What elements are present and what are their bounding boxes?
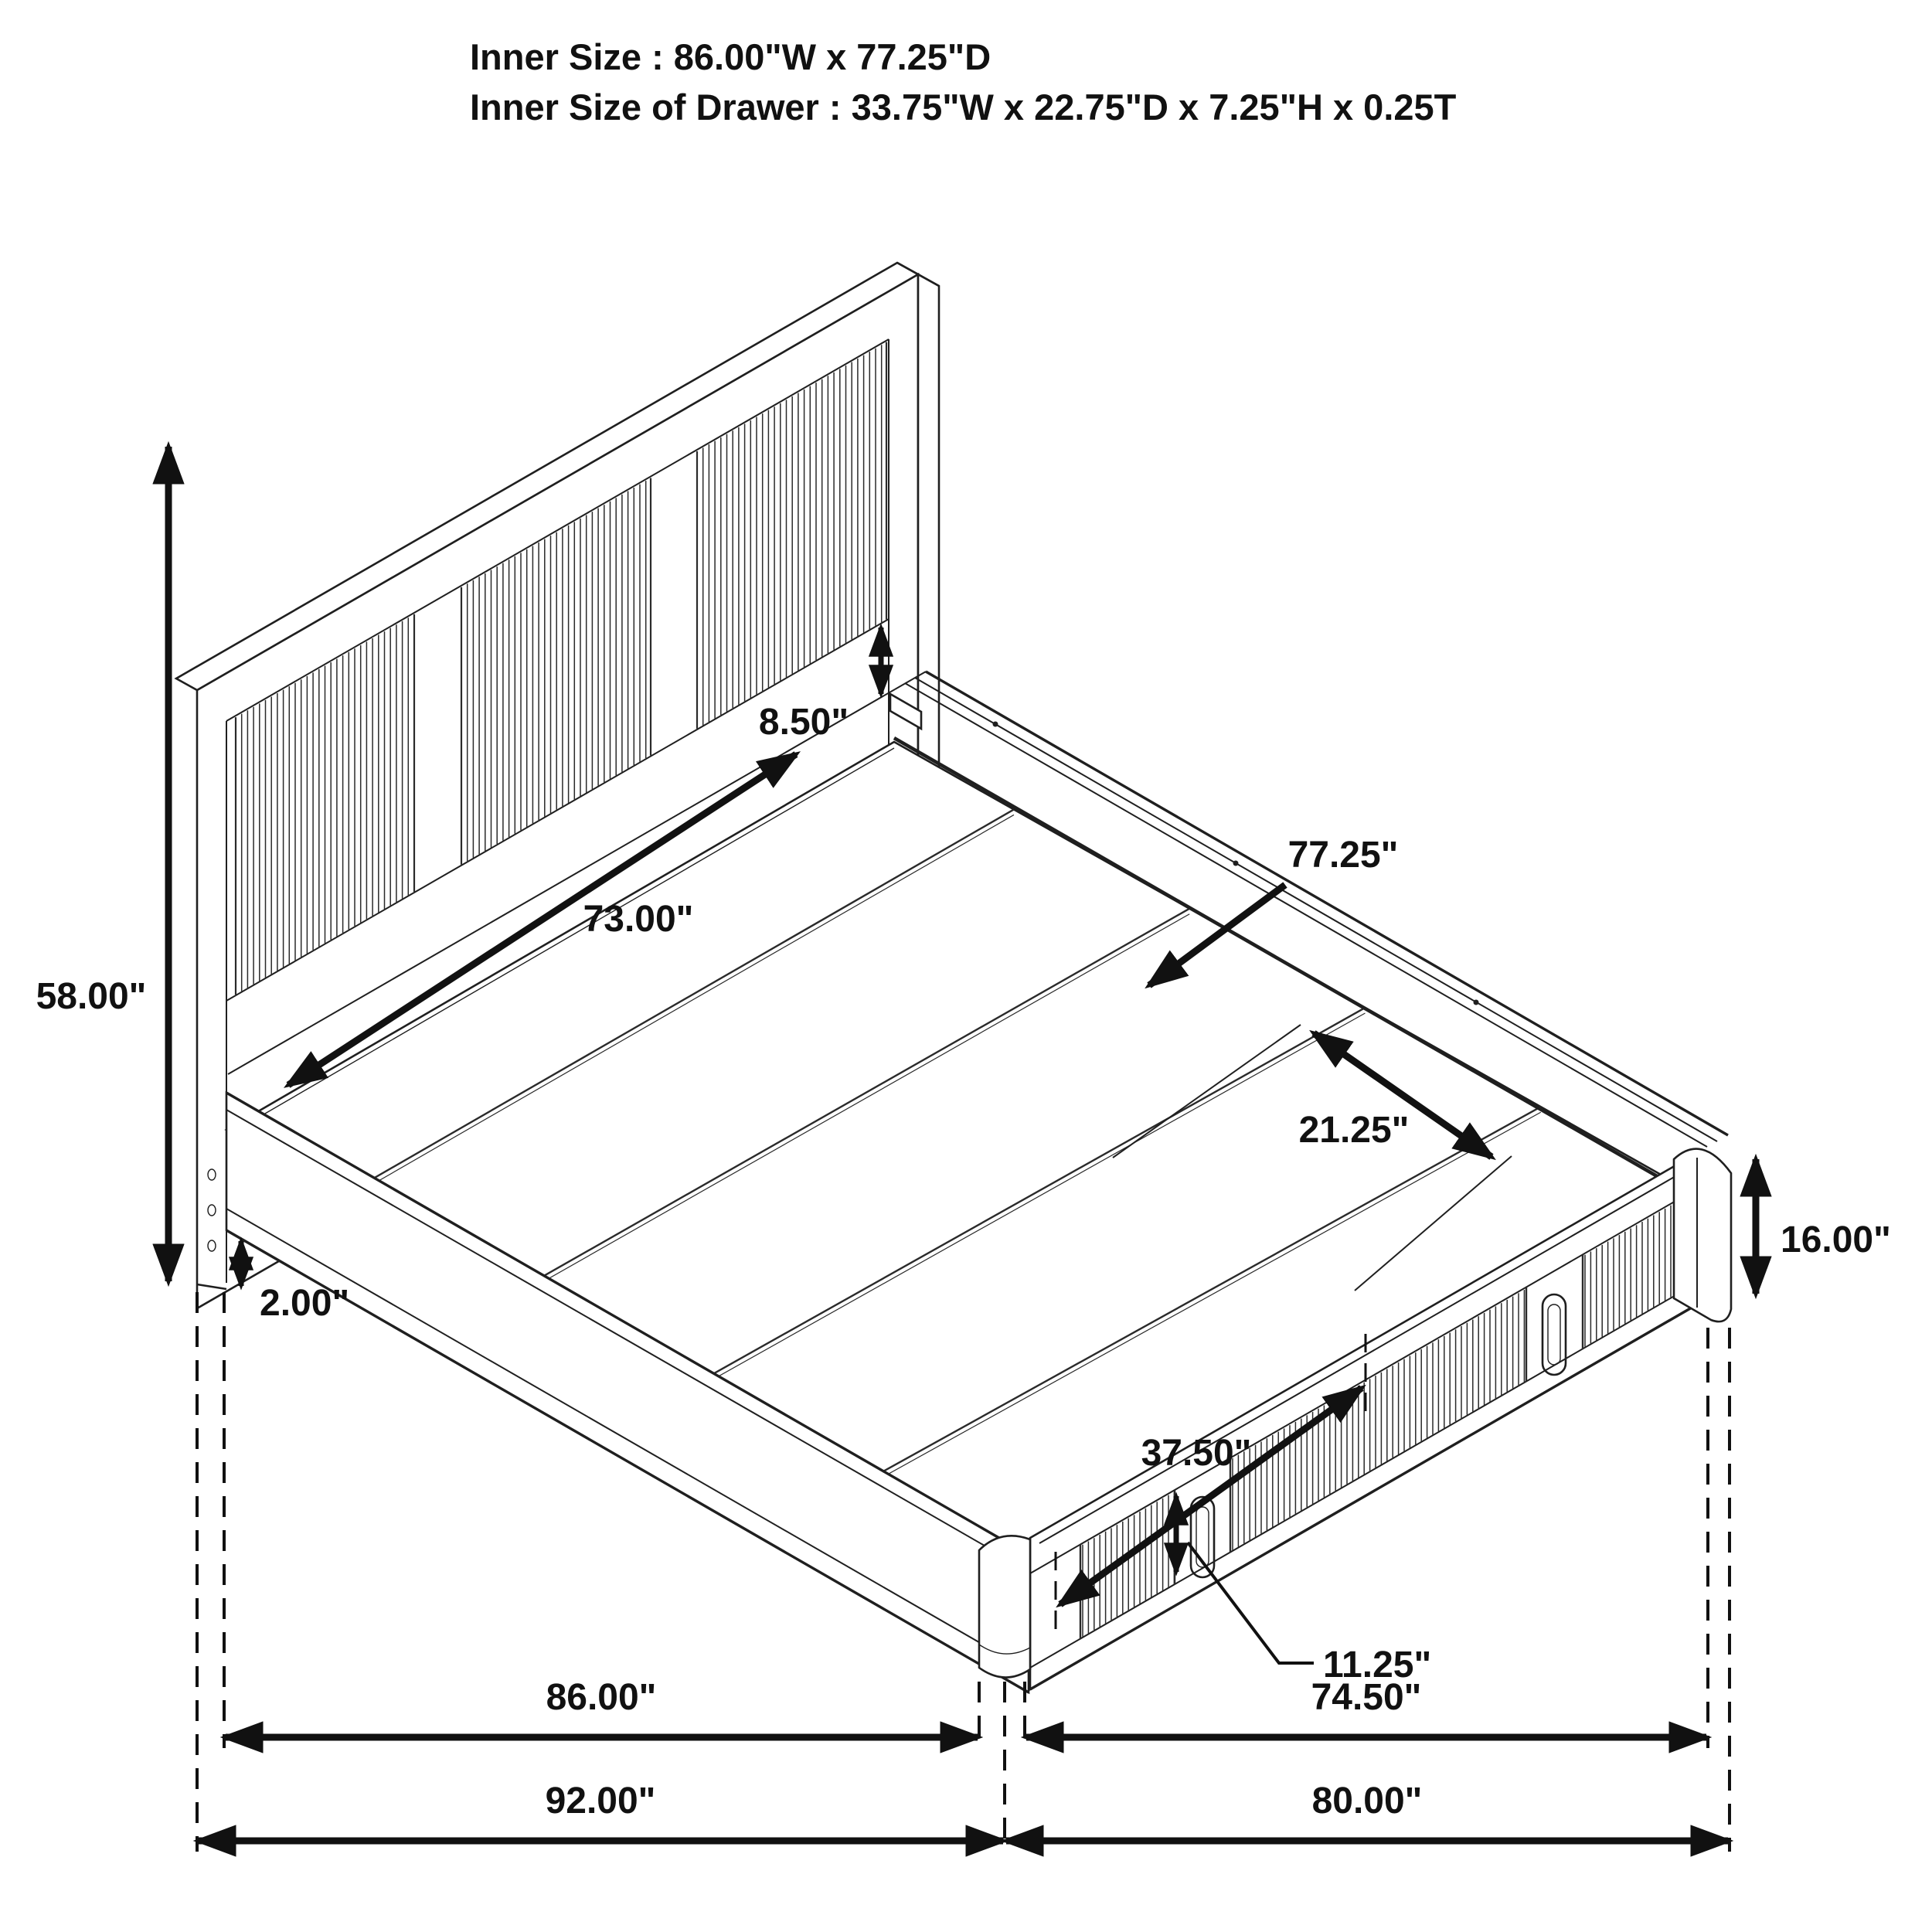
rail-hole bbox=[1233, 861, 1239, 866]
front-left-post bbox=[979, 1536, 1030, 1677]
dim-label-inner-depth: 77.25" bbox=[1288, 835, 1399, 876]
front-left-post-body bbox=[979, 1536, 1030, 1677]
front-right-post bbox=[1674, 1149, 1731, 1322]
title-line-1: Inner Size : 86.00"W x 77.25"D bbox=[470, 36, 991, 77]
title-line-2: Inner Size of Drawer : 33.75"W x 22.75"D… bbox=[470, 87, 1457, 128]
dim-label-rail-height: 8.50" bbox=[759, 702, 849, 743]
dim-label-inner-width: 86.00" bbox=[546, 1677, 657, 1718]
dim-label-drawer-span: 74.50" bbox=[1311, 1677, 1422, 1718]
dim-label-outer-width: 92.00" bbox=[546, 1781, 656, 1821]
rail-hole bbox=[1474, 1000, 1479, 1005]
dim-label-headboard-inner-width: 73.00" bbox=[583, 899, 694, 940]
rail-hole bbox=[993, 722, 998, 727]
dim-label-drawer-width: 37.50" bbox=[1141, 1433, 1252, 1474]
front-right-post-body bbox=[1674, 1149, 1731, 1322]
dim-label-outer-depth: 80.00" bbox=[1312, 1781, 1423, 1821]
bed-dimension-diagram: Inner Size : 86.00"W x 77.25"D Inner Siz… bbox=[0, 0, 1932, 1932]
dim-label-rail-to-drawer: 21.25" bbox=[1299, 1110, 1410, 1151]
dim-label-headboard-height: 58.00" bbox=[36, 976, 147, 1017]
dim-label-platform-height: 16.00" bbox=[1781, 1219, 1891, 1260]
dim-label-floor-clearance: 2.00" bbox=[260, 1283, 349, 1324]
